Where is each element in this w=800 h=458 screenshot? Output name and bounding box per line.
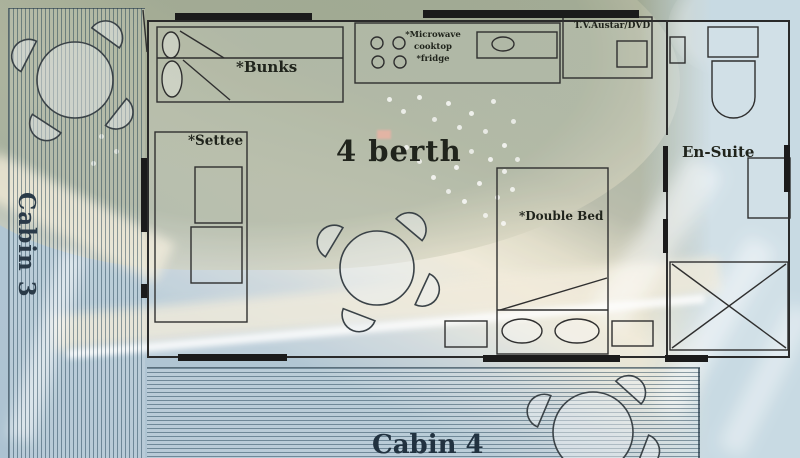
kitchen-label-line2: cooktop: [401, 41, 465, 53]
settee-label: *Settee: [188, 134, 243, 148]
chair: [636, 435, 664, 458]
cabin3-label: Cabin 3: [14, 192, 38, 298]
chair: [396, 206, 433, 241]
ensuite-label: En-Suite: [682, 145, 754, 161]
sink-bowl: [492, 37, 514, 51]
bunks-label: *Bunks: [236, 60, 297, 76]
tv-label: T.V.Austar/DVD: [572, 22, 652, 31]
pillow: [502, 319, 542, 343]
chair: [415, 274, 445, 312]
window-bar: [178, 354, 287, 361]
dining-table: [340, 231, 414, 305]
window-bar: [784, 145, 790, 192]
bed-blanket-fold: [500, 278, 607, 310]
window-bar: [175, 13, 312, 20]
vanity-basin: [748, 158, 790, 218]
settee-cushion: [195, 167, 242, 223]
chair: [522, 389, 551, 427]
tv-set: [617, 41, 647, 67]
dining-table: [553, 392, 633, 458]
berth-title: 4 berth: [336, 136, 462, 166]
window-bar: [663, 219, 668, 253]
bedside-table: [445, 321, 487, 347]
double-bed-label: *Double Bed: [519, 210, 603, 223]
window-bar: [423, 10, 639, 18]
bedside-table: [612, 321, 653, 346]
chair: [23, 114, 61, 147]
cooktop-burner: [371, 37, 383, 49]
chair: [6, 34, 37, 72]
window-bar: [141, 284, 147, 298]
window-bar: [665, 355, 708, 362]
floorplan-layer: [0, 0, 800, 458]
pillow: [162, 61, 182, 97]
chair: [92, 14, 129, 48]
pillow: [555, 319, 599, 343]
toilet-bowl: [712, 61, 755, 118]
cabin4-label: Cabin 4: [372, 432, 484, 458]
deck-edge: [143, 10, 147, 52]
kitchen-label: *Microwave cooktop *fridge: [401, 29, 465, 65]
bunk-blanket-line: [183, 60, 230, 100]
window-bar: [483, 355, 620, 362]
dining-table: [37, 42, 113, 118]
window-bar: [141, 158, 147, 232]
pillow: [163, 32, 180, 58]
chair: [311, 219, 343, 257]
chair: [337, 309, 375, 337]
kitchen-label-line3: *fridge: [401, 53, 465, 65]
toilet-cistern: [708, 27, 758, 57]
floorplan-image: Cabin 3 *Bunks *Settee 4 berth *Microwav…: [0, 0, 800, 458]
window-bar: [663, 146, 668, 192]
settee-cushion: [191, 227, 242, 283]
ensuite-cabinet: [670, 37, 685, 63]
sink-unit: [477, 32, 557, 58]
bunk-blanket-line: [180, 31, 224, 58]
kitchen-label-line1: *Microwave: [401, 29, 465, 41]
chair: [106, 99, 140, 136]
cooktop-burner: [372, 56, 384, 68]
chair: [616, 369, 653, 404]
